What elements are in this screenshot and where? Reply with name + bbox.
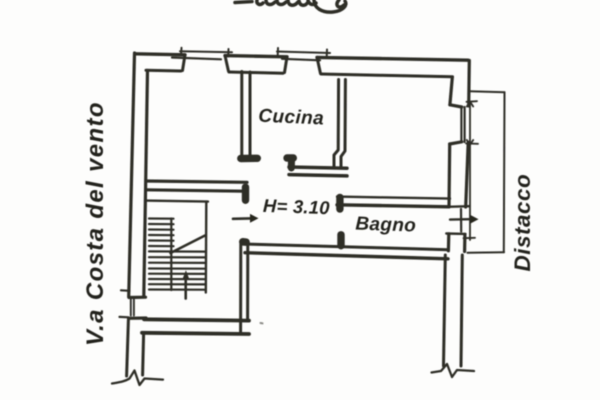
svg-text:V.a Costa del vento: V.a Costa del vento [82,101,109,346]
svg-text:Distacco: Distacco [510,174,535,272]
svg-text:Cucina: Cucina [258,106,325,130]
svg-text:Bagno: Bagno [355,213,416,236]
svg-text:H= 3.10: H= 3.10 [263,195,331,218]
